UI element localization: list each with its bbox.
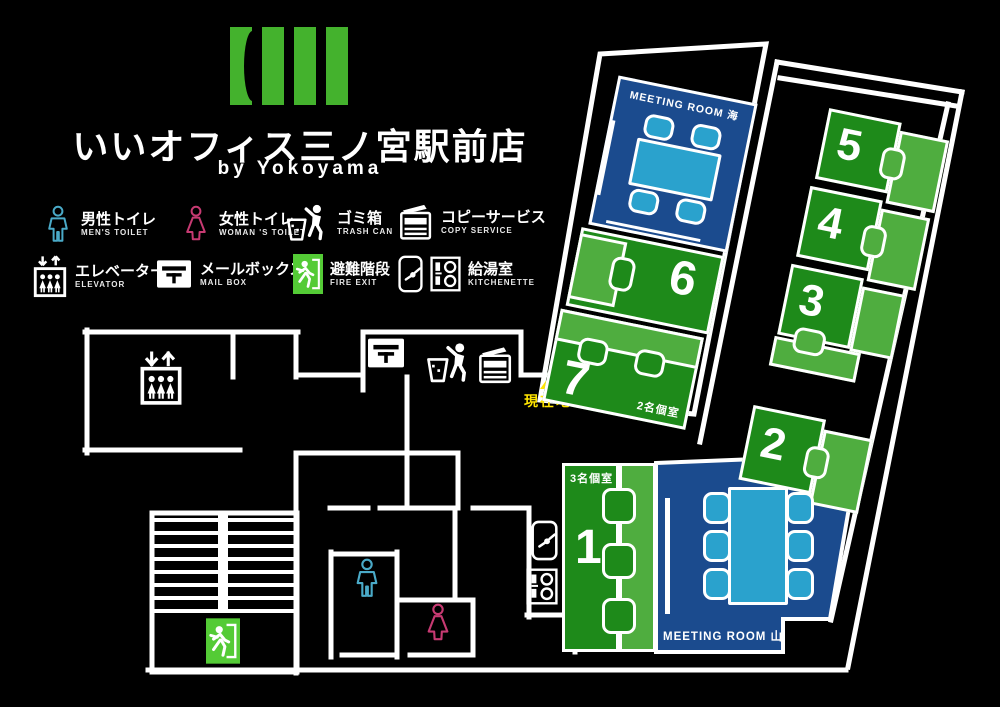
room-5-number: 5	[833, 122, 866, 170]
elevator-plan-icon	[142, 353, 179, 403]
chair	[602, 543, 636, 579]
chair	[642, 113, 676, 142]
room-7-capacity-label: 2名個室	[636, 397, 681, 421]
room-4-number: 4	[814, 200, 847, 248]
chair	[703, 492, 731, 524]
womens-toilet-plan-icon	[429, 605, 448, 639]
chair	[602, 488, 636, 524]
chair	[703, 568, 731, 600]
trash-can-plan-icon	[428, 343, 464, 381]
meeting-table	[728, 487, 788, 605]
whiteboard	[596, 120, 615, 195]
chair	[786, 568, 814, 600]
whiteboard	[665, 498, 670, 614]
fire-exit-plan-icon	[206, 618, 240, 663]
mens-toilet-plan-icon	[358, 560, 377, 596]
room-1-capacity-label: 3名個室	[570, 470, 613, 486]
meeting-room-yama-label: MEETING ROOM 山	[663, 628, 783, 644]
chair	[703, 530, 731, 562]
room-6-number: 6	[665, 253, 701, 305]
room-1-number: 1	[575, 524, 602, 572]
copier-plan-icon	[480, 347, 509, 381]
meeting-room-umi: MEETING ROOM 海	[588, 75, 757, 252]
chair	[786, 530, 814, 562]
room-3-number: 3	[795, 277, 828, 325]
room-7-number: 7	[557, 354, 593, 406]
chair	[689, 122, 723, 151]
chair	[674, 197, 708, 226]
chair	[602, 598, 636, 634]
mailbox-plan-icon	[368, 339, 404, 368]
chair	[632, 348, 667, 379]
chair	[786, 492, 814, 524]
room-2-number: 2	[757, 421, 790, 469]
chair	[627, 187, 661, 216]
floor-guide-poster: いいオフィス三ノ宮駅前店 by Yokoyama 男性トイレ MEN'S TOI…	[0, 0, 1000, 707]
